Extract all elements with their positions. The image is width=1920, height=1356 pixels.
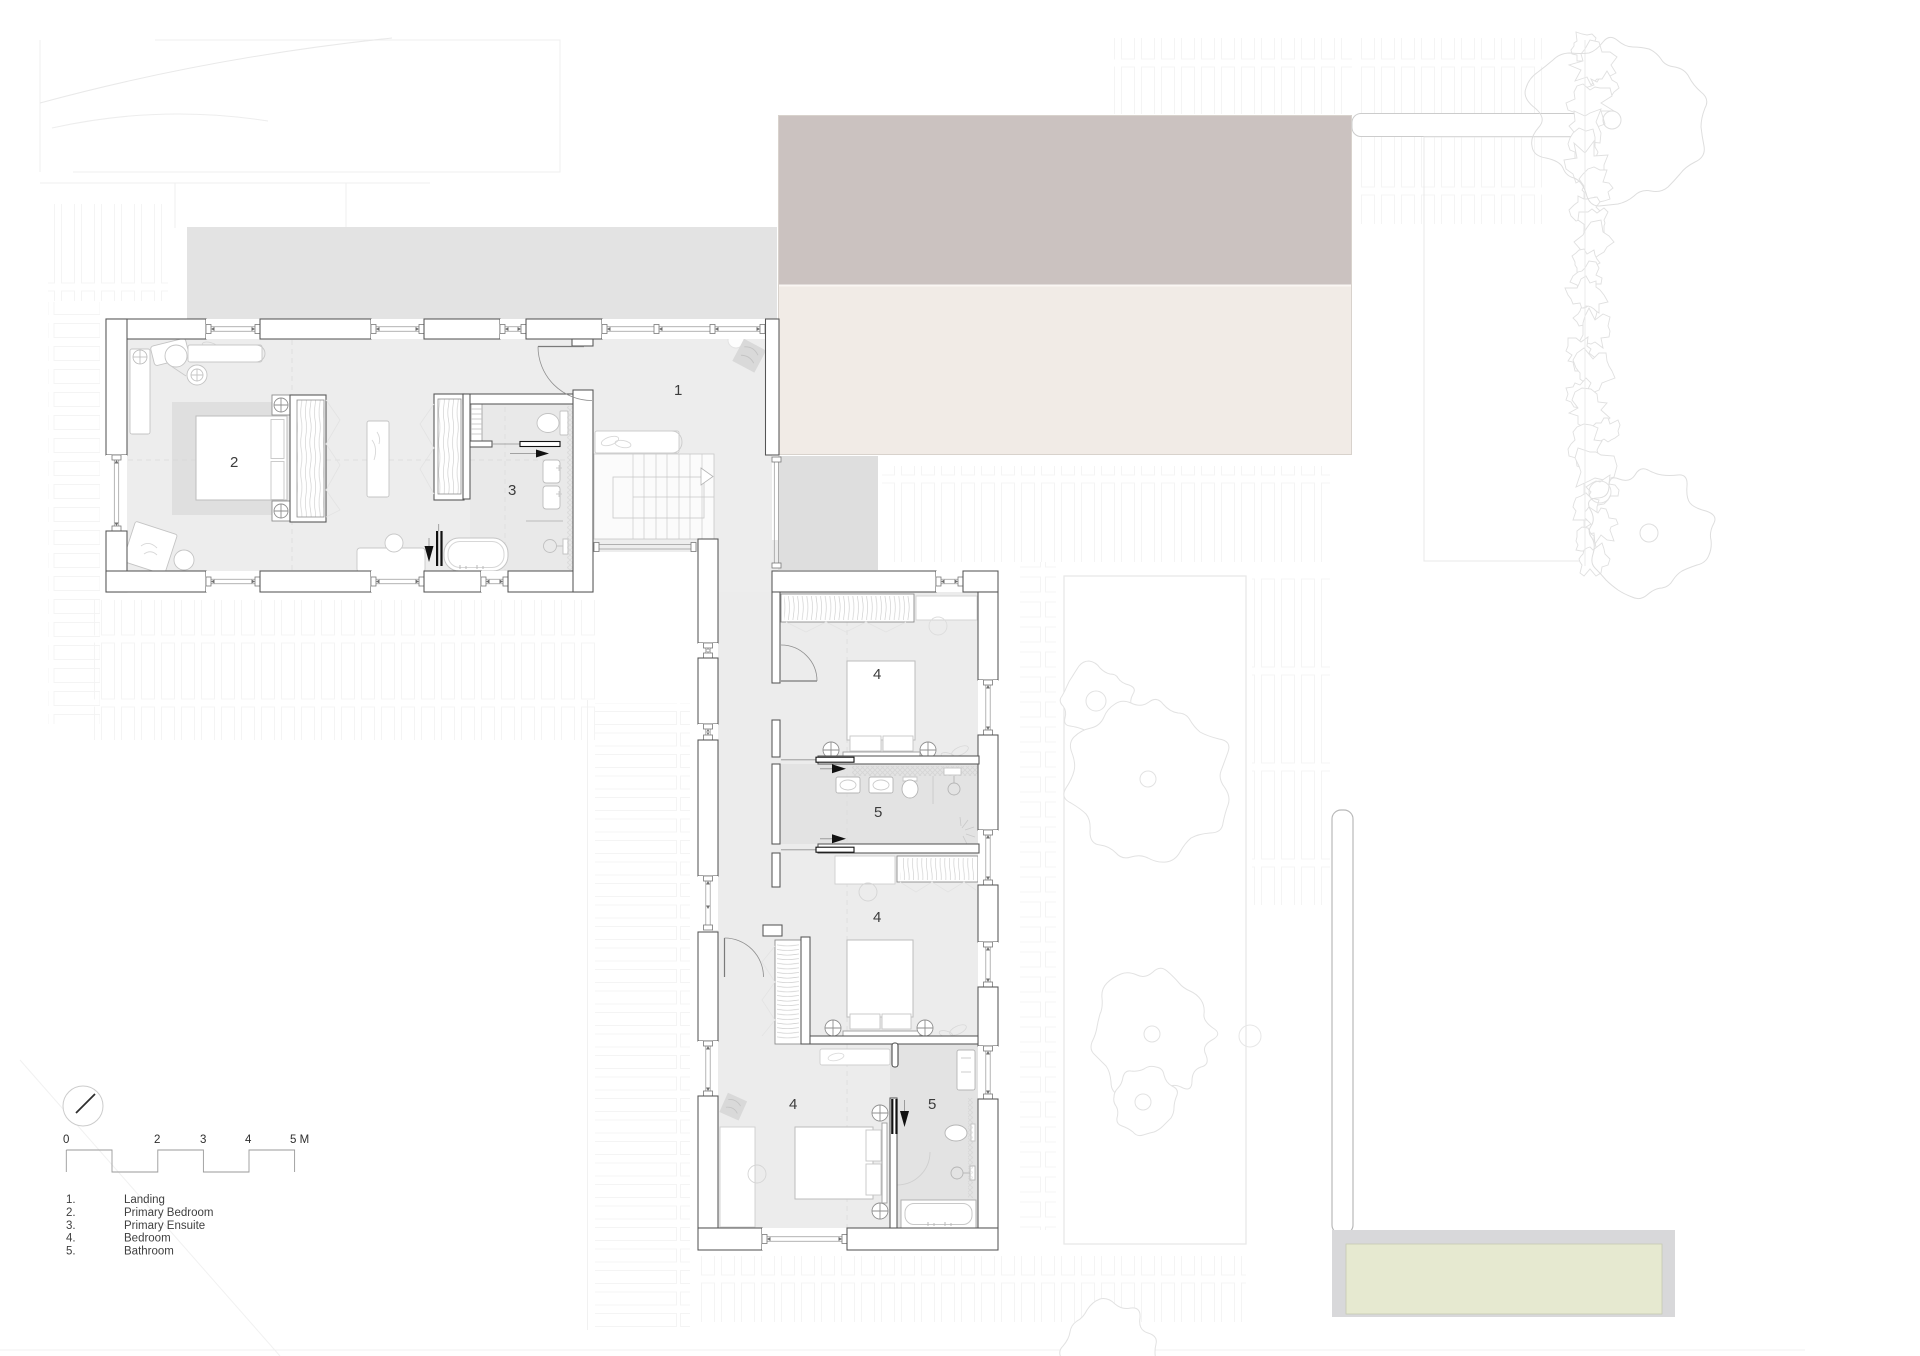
svg-text:3: 3 (200, 1134, 206, 1146)
svg-text:Primary Bedroom: Primary Bedroom (124, 1207, 213, 1219)
svg-text:5: 5 (928, 1096, 936, 1113)
svg-text:4: 4 (789, 1096, 797, 1113)
svg-text:0: 0 (63, 1134, 69, 1146)
svg-text:5 M: 5 M (290, 1134, 309, 1146)
svg-text:Landing: Landing (124, 1194, 165, 1206)
svg-text:3: 3 (508, 482, 516, 499)
svg-text:4.: 4. (66, 1233, 76, 1245)
svg-text:1: 1 (674, 382, 682, 399)
svg-text:Bedroom: Bedroom (124, 1233, 171, 1245)
svg-text:1.: 1. (66, 1194, 76, 1206)
svg-text:2: 2 (230, 454, 238, 471)
svg-text:Bathroom: Bathroom (124, 1246, 174, 1258)
svg-text:Primary Ensuite: Primary Ensuite (124, 1220, 205, 1232)
svg-text:5: 5 (874, 804, 882, 821)
svg-text:3.: 3. (66, 1220, 76, 1232)
svg-text:4: 4 (873, 909, 881, 926)
svg-text:5.: 5. (66, 1246, 76, 1258)
svg-text:2.: 2. (66, 1207, 76, 1219)
svg-text:4: 4 (873, 666, 881, 683)
svg-text:4: 4 (245, 1134, 252, 1146)
svg-text:2: 2 (154, 1134, 160, 1146)
